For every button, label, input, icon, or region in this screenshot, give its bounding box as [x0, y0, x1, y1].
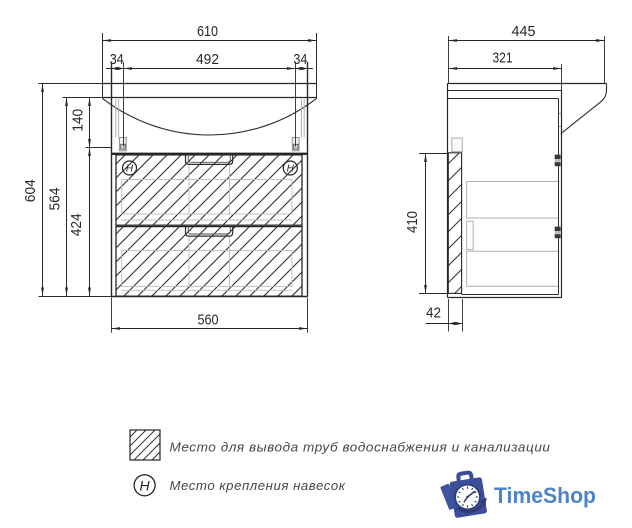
svg-text:492: 492	[196, 51, 219, 68]
svg-text:410: 410	[404, 211, 421, 233]
svg-text:H: H	[140, 477, 151, 493]
svg-text:564: 564	[47, 188, 64, 211]
svg-text:34: 34	[110, 51, 124, 68]
svg-text:560: 560	[198, 311, 219, 328]
svg-text:445: 445	[512, 23, 536, 40]
svg-text:610: 610	[197, 23, 218, 40]
svg-text:H: H	[126, 164, 134, 175]
svg-text:42: 42	[426, 305, 441, 322]
svg-text:604: 604	[22, 179, 39, 202]
svg-text:321: 321	[493, 50, 513, 67]
svg-text:Место крепления навесок: Место крепления навесок	[170, 479, 347, 493]
svg-text:H: H	[287, 164, 295, 175]
svg-text:Место для вывода труб водоснаб: Место для вывода труб водоснабжения и ка…	[170, 441, 551, 455]
svg-text:TimeShop: TimeShop	[494, 483, 596, 508]
svg-text:140: 140	[70, 109, 87, 132]
svg-text:424: 424	[68, 213, 85, 236]
